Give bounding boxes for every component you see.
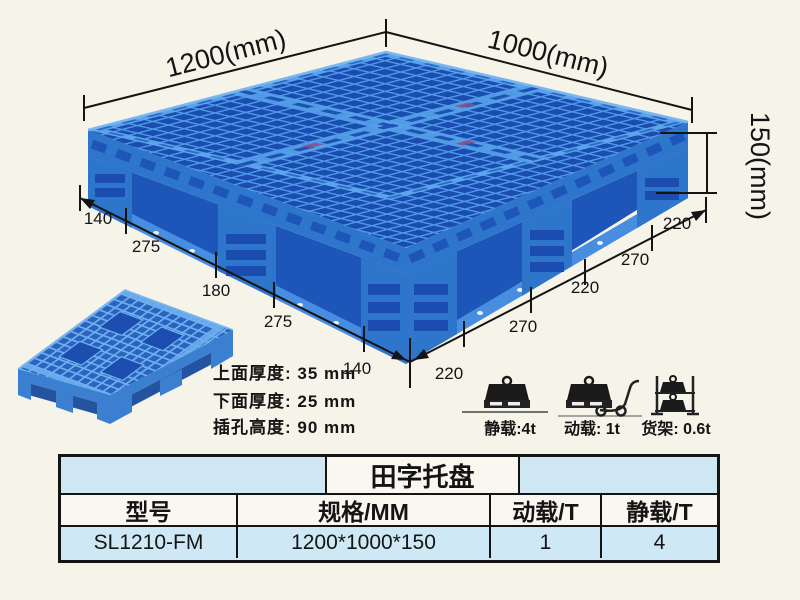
small-pallet xyxy=(18,290,233,424)
dynamic-load-label: 动载: 1t xyxy=(564,420,621,438)
spec-table-title-row: 田字托盘 xyxy=(61,457,717,495)
header-dynamic-load: 动载/T xyxy=(491,495,602,525)
static-load-weight-icon xyxy=(462,377,548,412)
load-rating-icons: 静载:4t 动载: 1t 货架: 0.6t xyxy=(462,376,711,438)
dim-tick-label: 220 xyxy=(571,278,599,297)
dim-tick-label: 140 xyxy=(84,209,112,228)
cell-static-load: 4 xyxy=(602,527,717,558)
cell-model: SL1210-FM xyxy=(61,527,238,558)
cell-dynamic-load: 1 xyxy=(491,527,602,558)
spec-table-title: 田字托盘 xyxy=(325,457,520,493)
dim-tick-label: 275 xyxy=(132,237,160,256)
dim-tick-label: 275 xyxy=(264,312,292,331)
dim-label-1200mm: 1200(mm) xyxy=(162,23,289,83)
dim-tick-label: 180 xyxy=(202,281,230,300)
note-fork-opening-height: 插孔高度: 90 mm xyxy=(213,413,356,438)
note-top-thickness: 上面厚度: 35 mm xyxy=(213,359,356,384)
dynamic-load-trolley-icon xyxy=(558,377,642,416)
dim-label-150mm: 150(mm) xyxy=(745,112,775,220)
spec-table-header-row: 型号 规格/MM 动载/T 静载/T xyxy=(61,495,717,527)
header-static-load: 静载/T xyxy=(602,495,717,525)
dim-tick-label: 270 xyxy=(621,250,649,269)
cell-spec: 1200*1000*150 xyxy=(238,527,491,558)
rack-load-shelf-icon xyxy=(651,376,699,414)
spec-table: 田字托盘 型号 规格/MM 动载/T 静载/T SL1210-FM 1200*1… xyxy=(58,454,720,563)
rack-load-label: 货架: 0.6t xyxy=(641,419,711,438)
product-spec-sheet: 1200(mm) 1000(mm) 150(mm) 140 275 180 27… xyxy=(0,0,800,600)
header-model: 型号 xyxy=(61,495,238,525)
static-load-label: 静载:4t xyxy=(484,419,536,438)
dim-tick-label: 220 xyxy=(663,214,691,233)
note-bottom-thickness: 下面厚度: 25 mm xyxy=(213,387,356,412)
dim-tick-label: 220 xyxy=(435,364,463,383)
spec-table-data-row: SL1210-FM 1200*1000*150 1 4 xyxy=(61,527,717,558)
header-spec: 规格/MM xyxy=(238,495,491,525)
dim-tick-label: 270 xyxy=(509,317,537,336)
